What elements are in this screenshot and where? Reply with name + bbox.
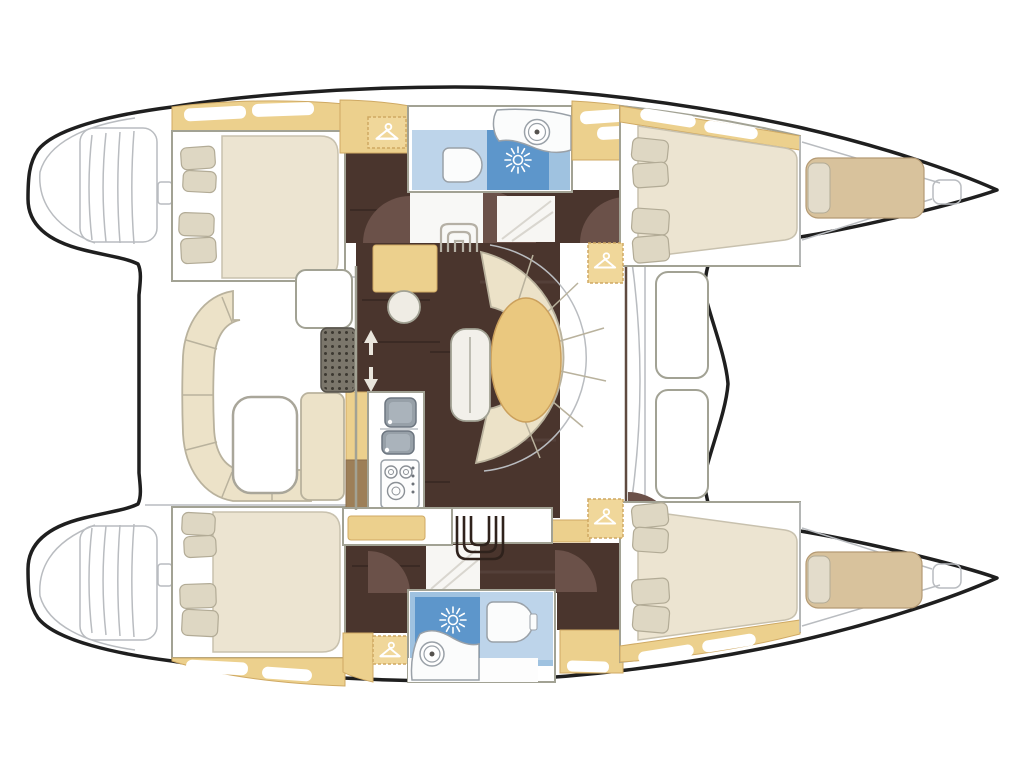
galley-sink-icon bbox=[385, 398, 416, 427]
hanger-icon bbox=[588, 499, 623, 538]
toilet-icon bbox=[487, 602, 533, 642]
round-stool bbox=[388, 291, 420, 323]
starboard-mid-locker-2 bbox=[552, 520, 590, 542]
cockpit-locker-seat bbox=[296, 270, 352, 328]
dining-table bbox=[491, 298, 561, 422]
foredeck-hatch-2 bbox=[656, 390, 708, 498]
port-aft-berth bbox=[222, 136, 338, 278]
starboard-wardrobe-block bbox=[343, 593, 410, 633]
cockpit-side-cushion bbox=[301, 393, 344, 500]
galley-sink-icon bbox=[382, 431, 414, 454]
hanger-icon bbox=[588, 243, 623, 283]
starboard-aft-berth bbox=[213, 512, 340, 652]
toilet-icon bbox=[443, 148, 482, 182]
deck-plan-page bbox=[0, 0, 1024, 768]
nav-table bbox=[373, 245, 437, 292]
galley-aft-locker bbox=[348, 516, 425, 540]
port-companionway-landing bbox=[410, 190, 483, 243]
starboard-head bbox=[408, 590, 555, 682]
cockpit-grate-mat bbox=[321, 328, 356, 392]
stove-icon bbox=[381, 460, 419, 508]
starboard-forepeak-pillow bbox=[808, 556, 830, 603]
catamaran-deck-plan bbox=[0, 0, 1024, 768]
foredeck-hatch-1 bbox=[656, 272, 708, 378]
port-forepeak-pillow bbox=[808, 163, 830, 213]
cockpit-table bbox=[233, 397, 297, 493]
starboard-aft-wardrobe bbox=[343, 633, 373, 682]
port-head bbox=[408, 106, 572, 192]
hanger-icon bbox=[368, 117, 406, 148]
starboard-fwd-block bbox=[557, 593, 626, 630]
galley-tall-cabinet bbox=[346, 460, 370, 510]
